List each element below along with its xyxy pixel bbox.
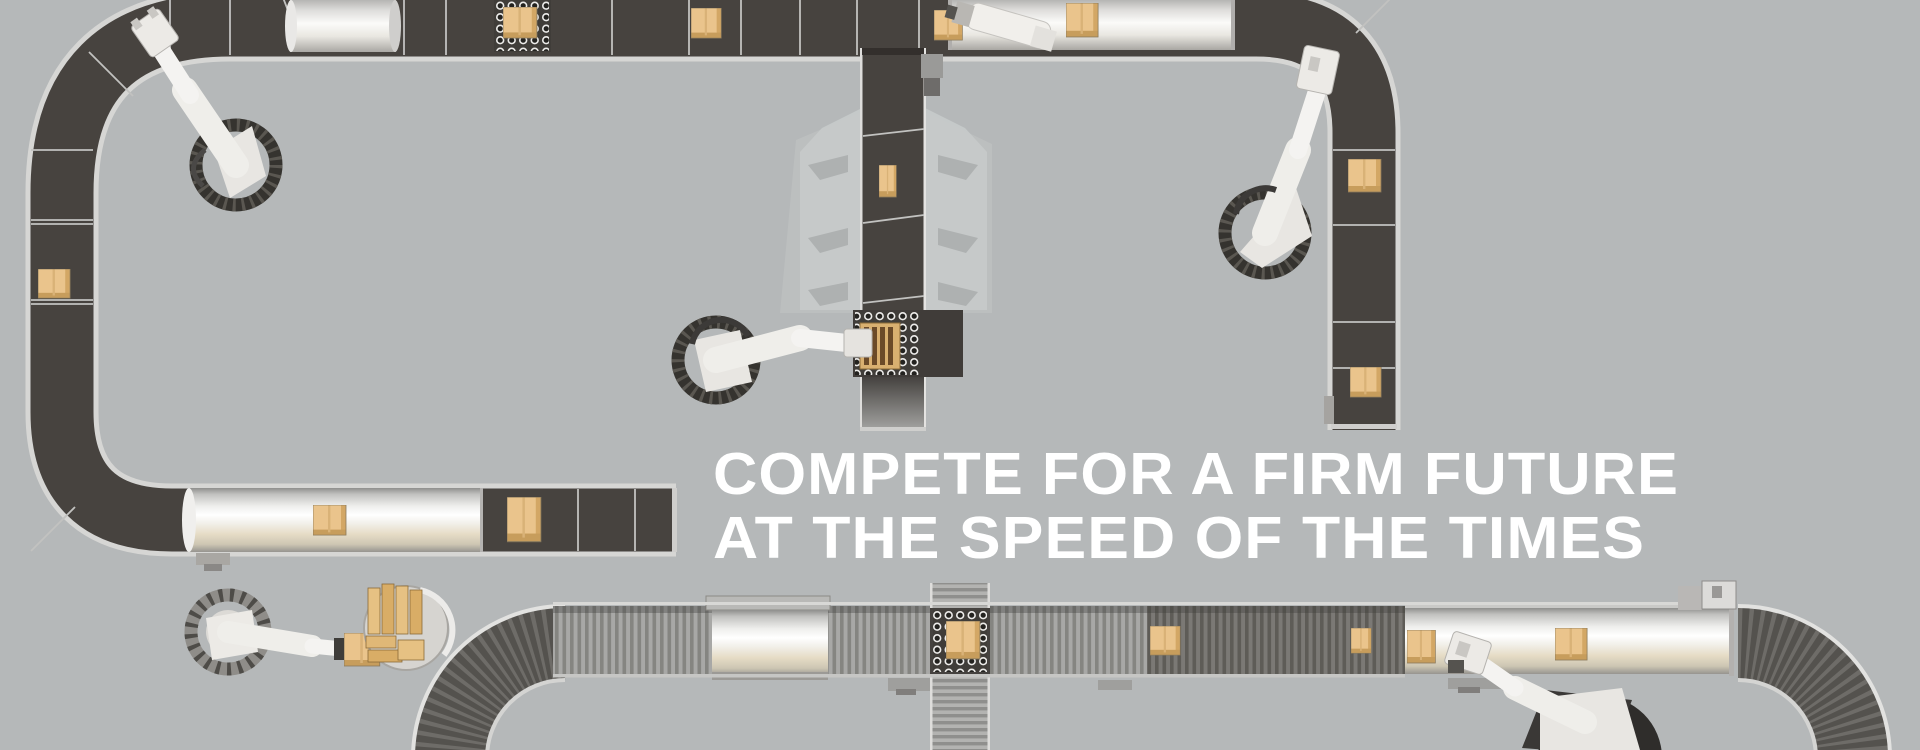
headline: COMPETE FOR A FIRM FUTURE AT THE SPEED O… xyxy=(713,441,1679,571)
chute-sensor xyxy=(924,78,940,96)
conveyor-foot xyxy=(196,553,230,565)
carton-box xyxy=(879,165,896,197)
conveyor-rail xyxy=(553,602,1733,605)
warehouse-banner: COMPETE FOR A FIRM FUTURE AT THE SPEED O… xyxy=(0,0,1920,750)
silver-belt-section xyxy=(290,0,396,52)
carton-box xyxy=(1407,630,1435,663)
carton-box xyxy=(38,269,70,298)
cross-junction xyxy=(930,583,990,750)
carton-box xyxy=(507,497,541,542)
warehouse-scene: COMPETE FOR A FIRM FUTURE AT THE SPEED O… xyxy=(0,0,1920,750)
roller-segment xyxy=(828,606,932,674)
headline-line1: COMPETE FOR A FIRM FUTURE xyxy=(713,441,1679,507)
carton-box xyxy=(1066,3,1098,37)
headline-line2: AT THE SPEED OF THE TIMES xyxy=(713,505,1645,571)
carton-box xyxy=(1348,159,1381,192)
conveyor-foot xyxy=(204,564,222,571)
roller-segment xyxy=(553,606,713,674)
conveyor-rail xyxy=(553,674,1405,678)
roller-segment xyxy=(988,606,1147,674)
carton-box xyxy=(691,8,721,38)
carton-box xyxy=(1150,626,1180,655)
carton-box xyxy=(503,7,537,38)
belt-scale-section xyxy=(706,596,830,680)
chute-exit-lane xyxy=(862,377,924,429)
carton-box xyxy=(946,621,980,659)
carton-box xyxy=(1350,367,1381,397)
belt-end-cap xyxy=(1331,424,1397,429)
carton-box xyxy=(313,505,346,535)
carton-box xyxy=(1555,628,1587,660)
carton-box xyxy=(1351,628,1371,653)
belt-motor-bracket xyxy=(1324,396,1334,424)
chute-sensor xyxy=(921,54,943,78)
